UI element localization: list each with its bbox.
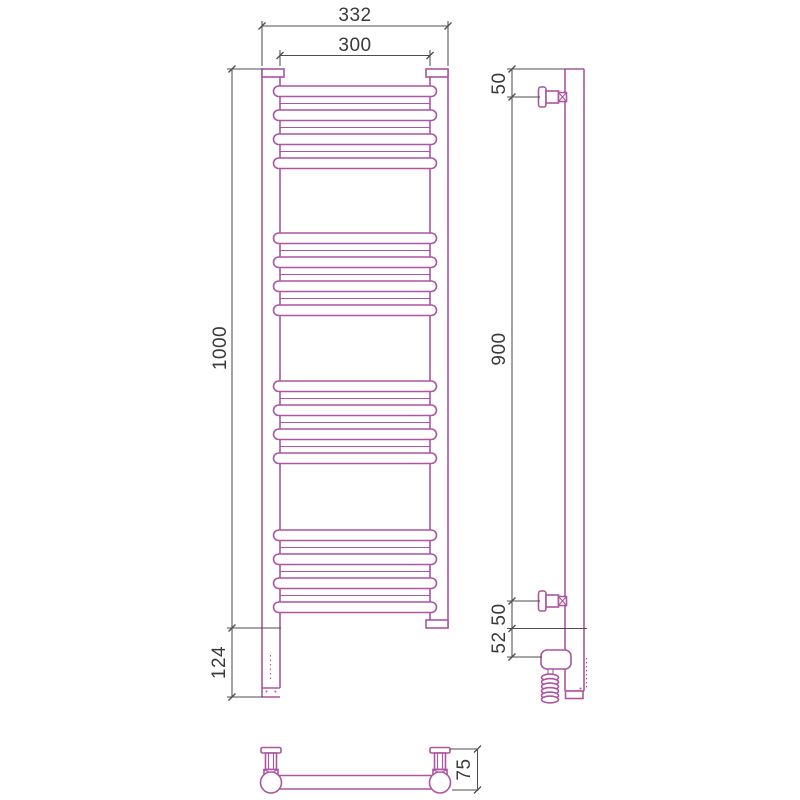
left-tube-top-cap bbox=[262, 69, 284, 77]
bar-group-1 bbox=[274, 86, 437, 169]
plan-collector-left bbox=[261, 772, 282, 793]
plan-collector-right bbox=[430, 772, 451, 793]
side-bracket-top bbox=[539, 87, 567, 107]
side-tube-bottom-cap bbox=[566, 691, 584, 699]
side-bracket-bottom bbox=[539, 591, 567, 611]
dim-label-bracket-top: 50 bbox=[489, 72, 510, 94]
front-view bbox=[262, 69, 448, 697]
right-tube-top-cap bbox=[426, 69, 448, 77]
dim-label-bracket-bottom: 50 bbox=[489, 603, 510, 625]
dim-label-height: 1000 bbox=[210, 326, 231, 370]
plan-dimensions: 75 bbox=[450, 746, 481, 794]
dim-label-bottom-ext: 124 bbox=[209, 646, 230, 679]
right-tube-bottom-cap bbox=[426, 620, 448, 628]
front-bar-groups bbox=[274, 86, 437, 613]
dim-label-bracket-span: 900 bbox=[489, 332, 510, 365]
dim-label-element-offset: 52 bbox=[489, 631, 510, 653]
coiled-cable bbox=[542, 674, 559, 703]
front-left-dimensions: 1000 124 bbox=[209, 66, 281, 701]
plan-view bbox=[261, 748, 451, 794]
side-dimensions: 50 900 50 52 bbox=[489, 66, 587, 661]
cap-dot bbox=[580, 688, 582, 690]
bar-group-4 bbox=[274, 530, 437, 613]
dim-label-depth: 75 bbox=[454, 758, 475, 780]
bar-group-2 bbox=[274, 233, 437, 316]
bar-group-3 bbox=[274, 381, 437, 464]
cap-dot bbox=[275, 691, 277, 693]
dim-label-center-width: 300 bbox=[338, 35, 371, 56]
dim-label-overall-width: 332 bbox=[338, 5, 371, 26]
front-top-dimensions: 332 300 bbox=[259, 5, 452, 66]
drawing-page: 332 300 1000 124 50 900 50 52 bbox=[0, 0, 800, 800]
cap-dot bbox=[266, 691, 268, 693]
electric-unit-body bbox=[541, 650, 571, 669]
side-view bbox=[539, 69, 587, 703]
drawing-canvas: 332 300 1000 124 50 900 50 52 bbox=[0, 0, 800, 800]
